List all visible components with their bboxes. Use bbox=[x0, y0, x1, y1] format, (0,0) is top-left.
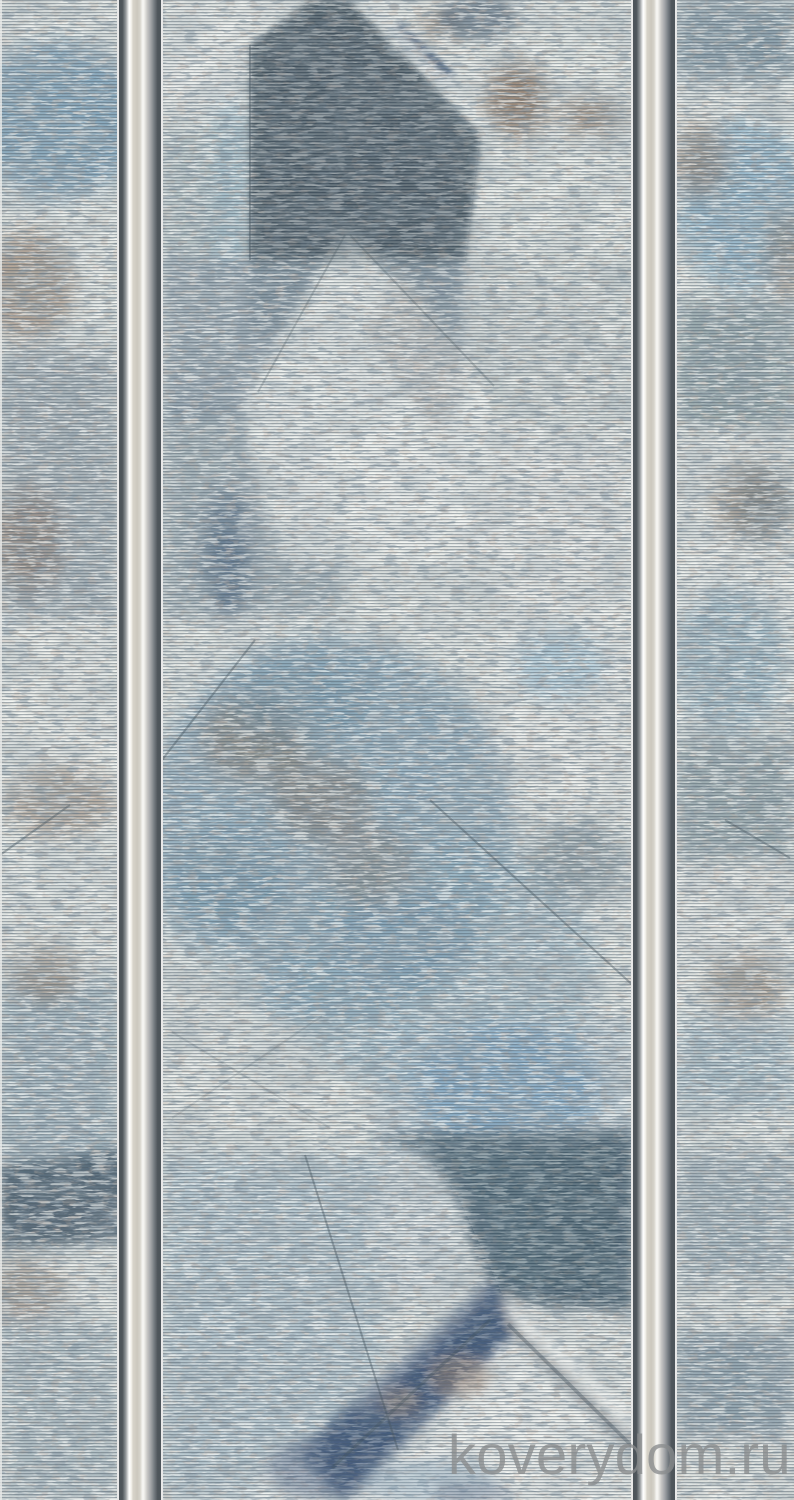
svg-text:koverydom.ru: koverydom.ru bbox=[448, 1423, 791, 1486]
